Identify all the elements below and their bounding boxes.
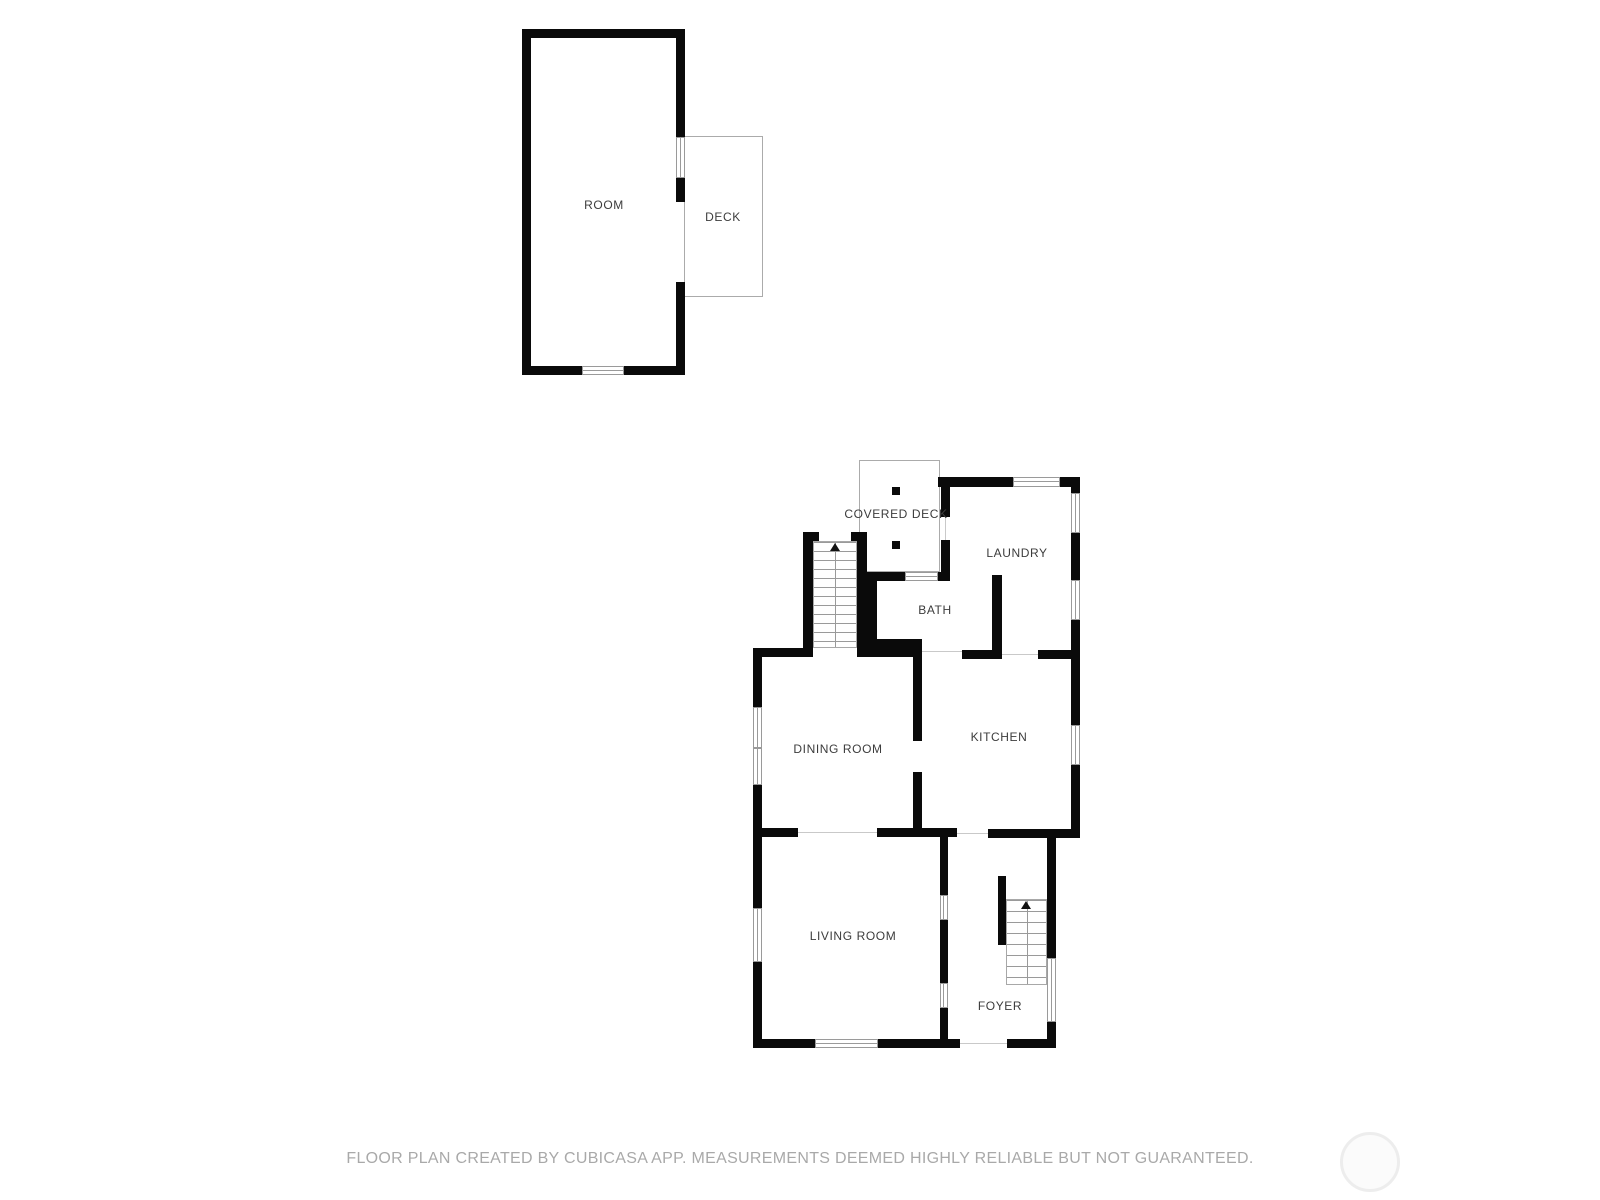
cubicasa-watermark-icon [1340, 1132, 1400, 1192]
wall-segment [522, 29, 685, 38]
dining-room-label: DINING ROOM [793, 743, 882, 755]
window [1071, 493, 1080, 533]
door-opening-line [922, 651, 962, 652]
wall-segment [676, 282, 685, 375]
door-opening-line [798, 832, 877, 833]
wall-segment [753, 1039, 815, 1048]
wall-segment [522, 29, 531, 375]
wall-segment [803, 532, 813, 657]
wall-segment [988, 829, 1080, 838]
deck-label: DECK [705, 211, 741, 223]
deck-post-icon [892, 541, 900, 549]
deck-post-icon [892, 487, 900, 495]
stairs-up [813, 541, 857, 648]
wall-segment [940, 920, 948, 983]
wall-segment [998, 876, 1006, 945]
window [753, 748, 762, 785]
wall-segment [867, 572, 905, 581]
laundry-label: LAUNDRY [986, 547, 1047, 559]
window [1071, 580, 1080, 620]
window [753, 908, 762, 962]
wall-segment [1007, 1039, 1056, 1048]
window [905, 572, 938, 581]
stairs-up [1006, 899, 1047, 985]
wall-segment [1047, 838, 1056, 958]
wall-segment [992, 575, 1002, 650]
interior-window [940, 895, 948, 920]
stairs-up-arrow-icon [1021, 901, 1031, 909]
floor-plan-page: ROOM DECK [0, 0, 1600, 1200]
wall-segment [1071, 620, 1080, 725]
wall-segment [676, 178, 685, 202]
wall-segment [913, 657, 922, 741]
door-opening-line [960, 1043, 1007, 1044]
wall-segment [857, 532, 867, 657]
wall-segment [962, 650, 1002, 659]
wall-segment [1071, 477, 1080, 493]
window [582, 366, 624, 375]
window [676, 137, 685, 178]
wall-segment [753, 648, 762, 707]
wall-segment [940, 837, 948, 895]
bath-label: BATH [918, 604, 952, 616]
wall-segment [877, 828, 957, 837]
wall-segment [867, 581, 877, 639]
wall-segment [762, 828, 798, 837]
covered-deck-label: COVERED DECK [844, 508, 947, 520]
window [1013, 477, 1060, 487]
wall-segment [940, 1008, 948, 1039]
wall-segment [676, 29, 685, 137]
wall-segment [1038, 650, 1071, 659]
door-opening-line [957, 833, 988, 834]
wall-segment [1071, 765, 1080, 838]
living-room-label: LIVING ROOM [810, 930, 897, 942]
kitchen-label: KITCHEN [971, 731, 1028, 743]
window [815, 1039, 878, 1048]
room-label: ROOM [584, 199, 624, 211]
window [1071, 725, 1080, 765]
wall-segment [913, 772, 922, 829]
wall-segment [1071, 533, 1080, 580]
wall-segment [753, 962, 762, 1048]
wall-segment [938, 572, 950, 581]
wall-segment [867, 639, 922, 657]
wall-segment [878, 1039, 960, 1048]
foyer-label: FOYER [978, 1000, 1022, 1012]
door-opening-line [1002, 654, 1038, 655]
wall-segment [753, 785, 762, 908]
stairs-up-arrow-icon [830, 543, 840, 551]
window [753, 707, 762, 748]
window [1047, 958, 1056, 1022]
interior-window [940, 983, 948, 1008]
